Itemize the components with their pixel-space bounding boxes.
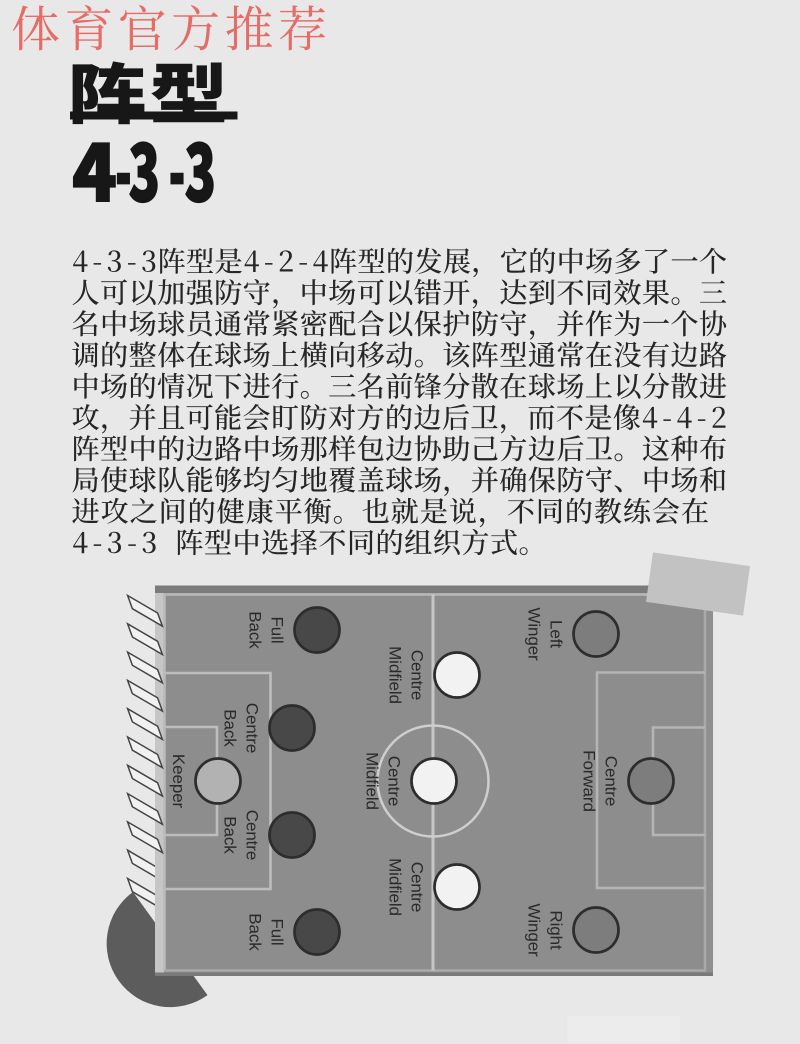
svg-text:Keeper: Keeper bbox=[169, 754, 188, 809]
